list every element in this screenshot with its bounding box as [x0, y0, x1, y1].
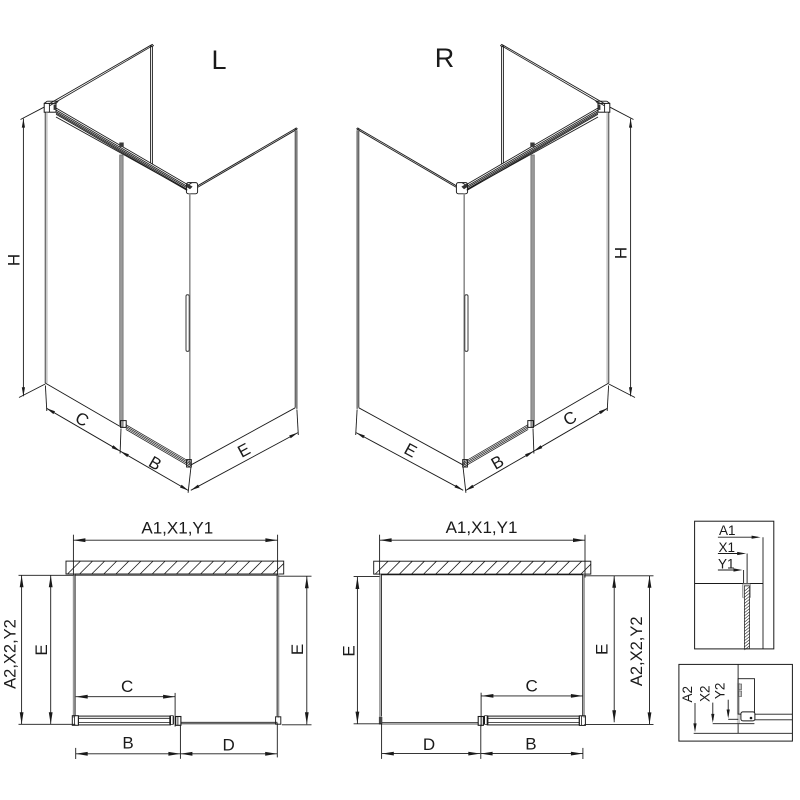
svg-text:X2: X2 [698, 686, 713, 703]
svg-text:Y1: Y1 [718, 556, 735, 571]
svg-text:C: C [72, 408, 92, 431]
svg-text:C: C [121, 677, 133, 696]
svg-text:E: E [288, 644, 307, 655]
svg-text:E: E [593, 644, 612, 655]
svg-text:D: D [423, 735, 435, 754]
svg-text:B: B [525, 734, 536, 753]
svg-text:X1: X1 [718, 540, 735, 555]
svg-text:B: B [488, 451, 507, 473]
svg-text:H: H [612, 247, 631, 259]
svg-text:A2: A2 [680, 686, 695, 703]
svg-text:E: E [340, 645, 359, 656]
svg-text:E: E [32, 644, 51, 655]
svg-text:H: H [4, 254, 23, 266]
svg-text:A2,X2,Y2: A2,X2,Y2 [1, 619, 19, 689]
svg-text:B: B [145, 452, 164, 474]
svg-text:L: L [211, 45, 226, 75]
svg-text:A1: A1 [719, 523, 736, 538]
svg-text:A1,X1,Y1: A1,X1,Y1 [446, 518, 518, 537]
svg-text:R: R [435, 43, 455, 73]
svg-text:C: C [526, 677, 538, 696]
svg-text:D: D [222, 736, 234, 755]
svg-text:A2,X2,Y2: A2,X2,Y2 [628, 616, 646, 686]
svg-text:A1,X1,Y1: A1,X1,Y1 [141, 519, 213, 538]
svg-text:B: B [122, 734, 133, 753]
svg-text:Y2: Y2 [712, 683, 727, 700]
